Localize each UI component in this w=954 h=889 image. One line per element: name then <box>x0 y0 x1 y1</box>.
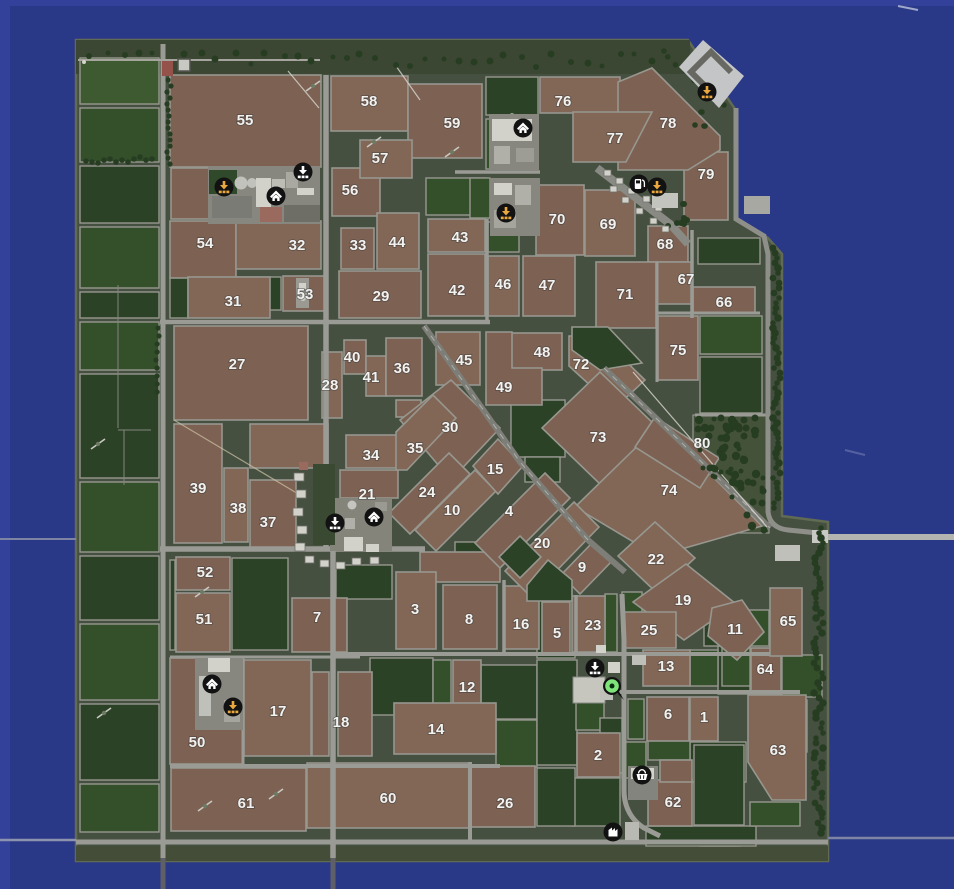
svg-text:49: 49 <box>496 379 513 396</box>
svg-text:42: 42 <box>449 282 466 299</box>
svg-text:6: 6 <box>664 706 672 723</box>
svg-text:53: 53 <box>297 286 314 303</box>
svg-text:9: 9 <box>578 559 586 576</box>
svg-text:29: 29 <box>373 288 390 305</box>
svg-text:22: 22 <box>648 551 665 568</box>
svg-text:65: 65 <box>780 613 797 630</box>
svg-text:77: 77 <box>607 130 624 147</box>
svg-text:11: 11 <box>727 621 743 638</box>
svg-text:67: 67 <box>678 271 695 288</box>
svg-text:14: 14 <box>428 721 445 738</box>
svg-text:57: 57 <box>372 150 389 167</box>
svg-text:78: 78 <box>660 115 677 132</box>
svg-text:33: 33 <box>350 237 367 254</box>
svg-text:73: 73 <box>590 429 607 446</box>
svg-text:2: 2 <box>594 747 602 764</box>
svg-text:15: 15 <box>487 461 504 478</box>
svg-text:58: 58 <box>361 93 378 110</box>
svg-text:51: 51 <box>196 611 213 628</box>
svg-text:71: 71 <box>617 286 634 303</box>
svg-text:26: 26 <box>497 795 514 812</box>
svg-text:16: 16 <box>513 616 530 633</box>
svg-text:23: 23 <box>585 617 602 634</box>
svg-text:61: 61 <box>238 795 255 812</box>
svg-text:80: 80 <box>694 435 711 452</box>
svg-text:46: 46 <box>495 276 512 293</box>
svg-text:48: 48 <box>534 344 551 361</box>
svg-text:62: 62 <box>665 794 682 811</box>
svg-text:28: 28 <box>322 377 339 394</box>
svg-text:10: 10 <box>444 502 461 519</box>
svg-text:4: 4 <box>505 503 514 520</box>
svg-text:45: 45 <box>456 352 473 369</box>
svg-text:3: 3 <box>411 601 419 618</box>
svg-text:55: 55 <box>237 112 254 129</box>
svg-text:19: 19 <box>675 592 692 609</box>
svg-text:64: 64 <box>757 661 774 678</box>
svg-text:31: 31 <box>225 293 242 310</box>
svg-text:30: 30 <box>442 419 459 436</box>
svg-text:63: 63 <box>770 742 787 759</box>
svg-text:1: 1 <box>700 709 708 726</box>
svg-text:17: 17 <box>270 703 287 720</box>
svg-text:18: 18 <box>333 714 350 731</box>
svg-text:60: 60 <box>380 790 397 807</box>
svg-text:74: 74 <box>661 482 678 499</box>
svg-text:52: 52 <box>197 564 214 581</box>
svg-text:21: 21 <box>359 486 376 503</box>
svg-text:38: 38 <box>230 500 247 517</box>
svg-text:56: 56 <box>342 182 359 199</box>
svg-text:7: 7 <box>313 609 321 626</box>
svg-text:5: 5 <box>553 625 561 642</box>
svg-text:27: 27 <box>229 356 246 373</box>
svg-text:72: 72 <box>573 356 590 373</box>
svg-text:76: 76 <box>555 93 572 110</box>
svg-text:13: 13 <box>658 658 675 675</box>
svg-text:75: 75 <box>670 342 687 359</box>
svg-text:68: 68 <box>657 236 674 253</box>
svg-text:66: 66 <box>716 294 733 311</box>
svg-text:35: 35 <box>407 440 424 457</box>
svg-text:59: 59 <box>444 115 461 132</box>
svg-text:37: 37 <box>260 514 277 531</box>
svg-text:54: 54 <box>197 235 214 252</box>
svg-text:70: 70 <box>549 211 566 228</box>
svg-text:20: 20 <box>534 535 551 552</box>
svg-text:50: 50 <box>189 734 206 751</box>
svg-text:79: 79 <box>698 166 715 183</box>
svg-text:40: 40 <box>344 349 361 366</box>
svg-text:24: 24 <box>419 484 436 501</box>
svg-text:8: 8 <box>465 611 473 628</box>
svg-text:25: 25 <box>641 622 658 639</box>
svg-text:44: 44 <box>389 234 406 251</box>
svg-text:47: 47 <box>539 277 556 294</box>
svg-text:69: 69 <box>600 216 617 233</box>
svg-text:39: 39 <box>190 480 207 497</box>
svg-text:12: 12 <box>459 679 476 696</box>
svg-text:32: 32 <box>289 237 306 254</box>
svg-text:36: 36 <box>394 360 411 377</box>
svg-text:34: 34 <box>363 447 380 464</box>
svg-text:41: 41 <box>363 369 380 386</box>
svg-text:43: 43 <box>452 229 469 246</box>
